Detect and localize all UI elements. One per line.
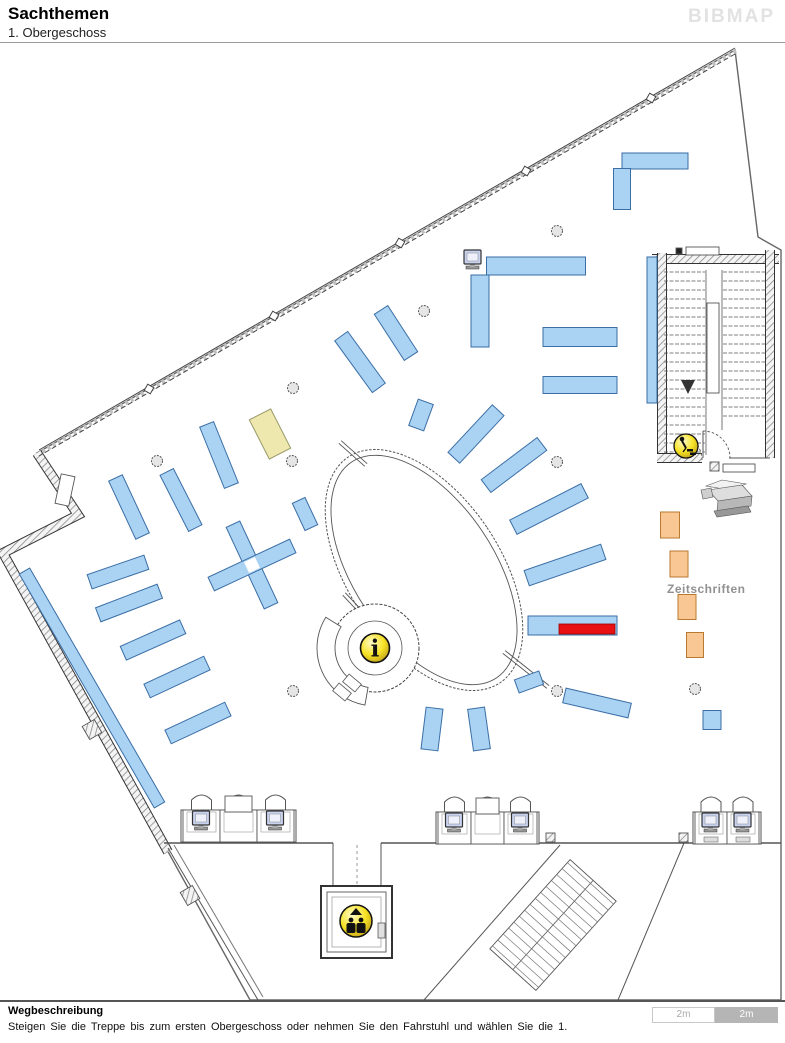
bibmap-logo: BIBMAP [688,6,775,28]
bookshelf [647,257,657,403]
desk [220,810,257,842]
bookshelf [703,711,721,730]
column-pillar [552,457,563,468]
column-pillar [152,456,163,467]
desk [471,812,504,844]
computer-screen [270,814,281,822]
elevator-person-body [347,923,356,933]
bookshelf [543,328,617,347]
floor-subtitle: 1. Obergeschoss [8,25,106,40]
bench-rect [723,464,755,472]
bookshelf [622,153,688,169]
elevator-person-head [349,918,354,923]
highlight-marker-sachthemen [559,624,615,634]
wall-post [679,833,688,842]
stairs-person-head [680,437,685,442]
column-pillar [287,456,298,467]
column-pillar [552,226,563,237]
info-icon-glyph: i [371,636,380,663]
bibmap-page: Sachthemen 1. Obergeschoss BIBMAP iZeits… [0,0,785,1043]
desk-shelf-box [476,798,499,814]
route-description: Steigen Sie die Treppe bis zum ersten Ob… [8,1021,648,1033]
computer-screen [449,816,460,824]
magazine-shelf [687,633,704,658]
elevator-panel [378,923,385,938]
elevator-person-body [357,923,366,933]
magazine-shelf [661,512,680,538]
column-pillar [288,383,299,394]
bookshelf [487,257,586,275]
bench-rect [707,303,719,393]
bookshelf [543,377,617,394]
magazine-shelf [670,551,688,577]
page-header: Sachthemen 1. Obergeschoss BIBMAP [0,0,785,43]
stairs-step [687,449,693,452]
chair-icon [511,797,531,812]
page-title: Sachthemen [8,4,109,24]
computer-screen [196,814,207,822]
wall-post [546,833,555,842]
column-pillar [690,684,701,695]
stairs-step [690,453,696,456]
printer-icon [701,488,713,499]
scale-segment-dark: 2m [715,1007,778,1023]
chair-icon [192,795,212,810]
keyboard-icon [704,837,718,842]
scale-segment-light: 2m [652,1007,715,1023]
computer-screen [705,816,716,824]
page-footer: Wegbeschreibung Steigen Sie die Treppe b… [0,1000,785,1043]
chair-icon [701,797,721,812]
desk-shelf-box [225,796,252,812]
bookshelf [471,275,489,347]
chair-icon [733,797,753,812]
magazine-shelf [678,595,696,620]
route-heading: Wegbeschreibung [8,1005,103,1017]
wall-post [710,462,719,471]
floor-plan-map: iZeitschriften [0,43,785,1000]
chair-icon [266,795,286,810]
computer-screen [467,253,478,261]
map-scale-bar: 2m 2m [652,1007,778,1023]
column-pillar [419,306,430,317]
elevator-person-head [359,918,364,923]
chair-icon [445,797,465,812]
column-pillar [552,686,563,697]
keyboard-icon [736,837,750,842]
bookshelf [614,169,631,210]
bench-rect [686,247,719,255]
computer-screen [515,816,526,824]
bench-rect [676,248,682,254]
column-pillar [288,686,299,697]
zeitschriften-label: Zeitschriften [667,582,746,596]
computer-screen [737,816,748,824]
floor-plan-container: iZeitschriften [0,43,785,1000]
